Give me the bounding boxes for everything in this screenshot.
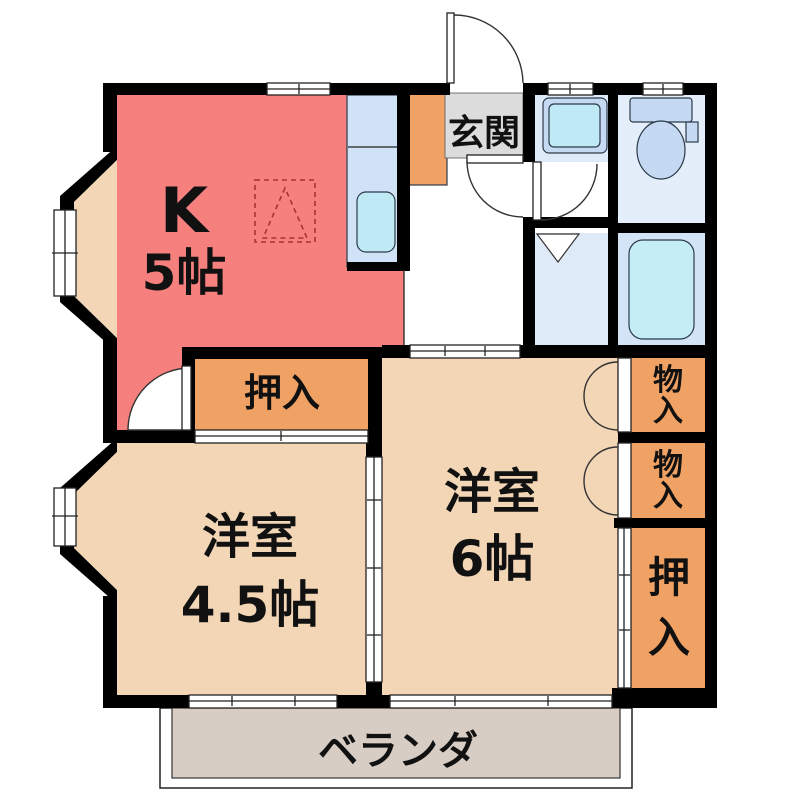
sliding-door-room6-entry xyxy=(410,345,520,358)
toilet-bowl xyxy=(637,121,685,179)
window-kitchen-top xyxy=(267,83,330,95)
svg-text:入: 入 xyxy=(648,613,690,662)
wall-right xyxy=(705,83,717,708)
room-6-size-label: 6帖 xyxy=(450,530,535,588)
wall-45-topleft xyxy=(117,430,195,443)
wall-top-1 xyxy=(103,83,267,95)
wall-closet-top-top xyxy=(182,347,382,359)
wall-left-3 xyxy=(103,596,117,695)
wall-hall-wash-2 xyxy=(523,222,535,347)
room-45-label: 洋室 xyxy=(202,509,298,565)
svg-text:物: 物 xyxy=(653,448,683,483)
room-6-floor xyxy=(382,358,618,695)
sliding-door-partition xyxy=(366,457,382,682)
washroom-floor xyxy=(535,233,608,347)
kitchen-sink xyxy=(357,192,395,252)
kitchen-label: K xyxy=(160,174,210,247)
window-toilet-top xyxy=(643,83,683,95)
sliding-door-closet-right xyxy=(618,528,631,688)
wall-partition-top xyxy=(366,443,382,457)
veranda-label: ベランダ xyxy=(318,728,478,774)
wall-bottom-1 xyxy=(103,695,189,708)
shoe-cabinet xyxy=(408,93,447,185)
closet-top-label: 押入 xyxy=(244,371,320,415)
svg-text:入: 入 xyxy=(653,394,683,429)
sliding-door-closet-top xyxy=(195,430,368,443)
window-6-veranda xyxy=(390,695,612,708)
toilet-handle xyxy=(686,122,698,142)
storage-upper-label: 物 入 xyxy=(653,363,683,429)
svg-text:押: 押 xyxy=(648,553,690,602)
wall-mid-1 xyxy=(382,345,410,358)
wall-hall-wash-1 xyxy=(523,83,535,162)
floorplan-drawing: K 5帖 玄関 押入 洋室 4.5帖 洋室 6帖 ベランダ 物 入 物 入 押 … xyxy=(0,0,800,800)
washbasin-bowl xyxy=(549,104,600,147)
storage-lower-label: 物 入 xyxy=(653,448,683,514)
wall-left-1 xyxy=(103,83,117,152)
wall-storage-thick xyxy=(614,518,705,528)
wall-partition-bottom xyxy=(366,682,382,695)
wall-top-2 xyxy=(330,83,450,95)
svg-text:入: 入 xyxy=(653,479,683,514)
entrance-label: 玄関 xyxy=(448,113,520,154)
entrance-step-door xyxy=(467,155,523,217)
front-door xyxy=(447,13,523,83)
wall-kitchen-hall xyxy=(397,83,410,270)
wall-wash-toilet xyxy=(608,93,618,227)
svg-text:物: 物 xyxy=(653,363,683,398)
wall-counter-stub xyxy=(347,262,410,271)
wall-washroom-bath xyxy=(608,228,618,347)
wall-storage-sep xyxy=(618,432,705,443)
wall-left-2 xyxy=(103,338,117,443)
window-washbasin-top xyxy=(548,83,593,95)
room-45-floor xyxy=(117,443,366,695)
window-45-veranda xyxy=(189,695,337,708)
washbasin-room-door xyxy=(533,162,597,220)
wall-closet-right-bottom xyxy=(612,688,717,700)
bathtub xyxy=(629,240,694,339)
wall-closet-top-right xyxy=(368,347,382,457)
wall-bottom-2 xyxy=(337,695,390,708)
room-6-label: 洋室 xyxy=(444,464,540,520)
kitchen-size-label: 5帖 xyxy=(142,244,227,302)
wall-toilet-bath xyxy=(618,223,705,233)
room-45-size-label: 4.5帖 xyxy=(181,576,320,634)
toilet-tank xyxy=(630,98,692,122)
floorplan-page: K 5帖 玄関 押入 洋室 4.5帖 洋室 6帖 ベランダ 物 入 物 入 押 … xyxy=(0,0,800,800)
